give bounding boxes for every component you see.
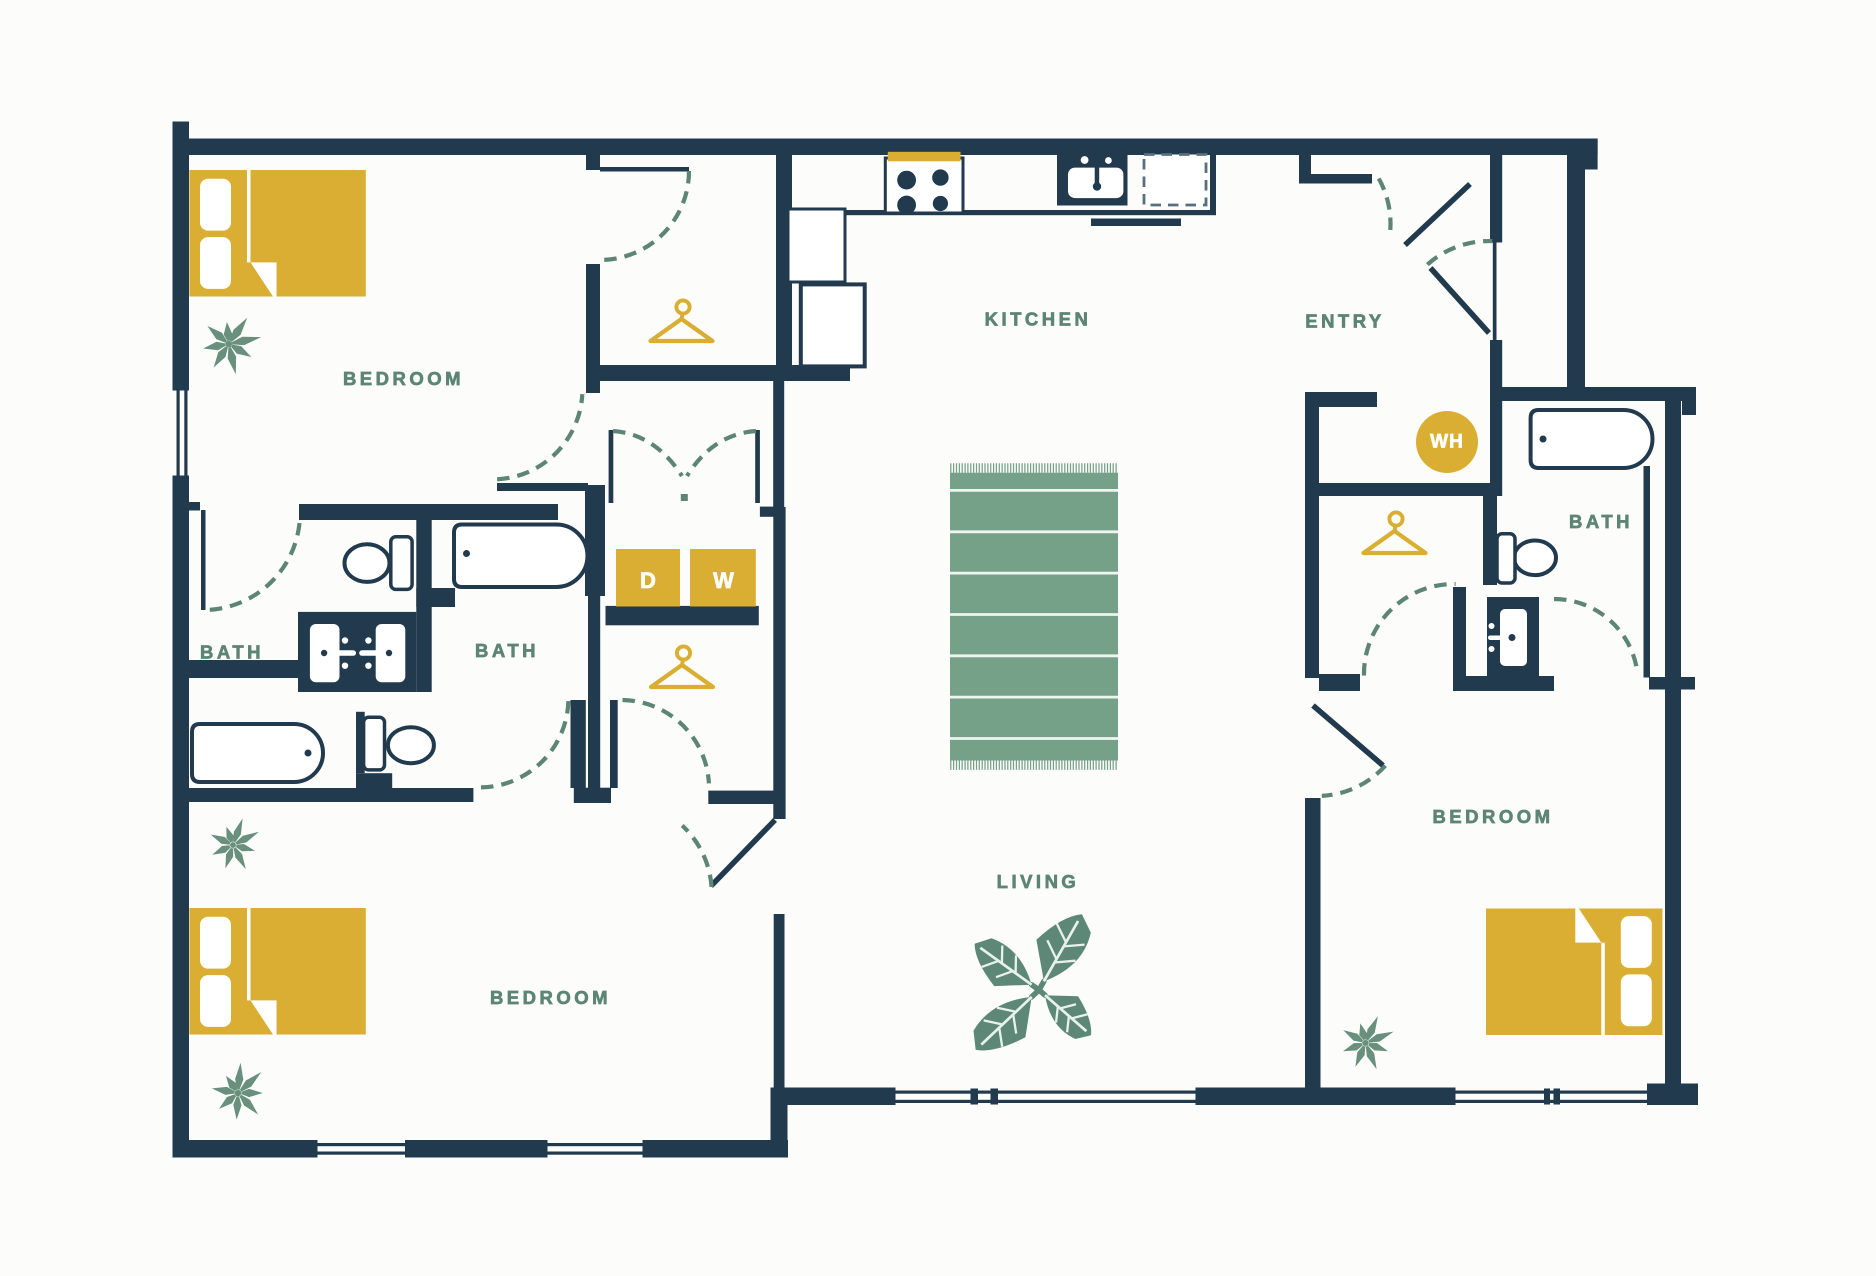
svg-text:WH: WH [1430, 432, 1464, 453]
svg-text:W: W [713, 568, 734, 593]
svg-text:BEDROOM: BEDROOM [490, 987, 611, 1008]
svg-text:D: D [640, 568, 656, 593]
svg-text:BEDROOM: BEDROOM [343, 368, 464, 389]
svg-text:BEDROOM: BEDROOM [1432, 806, 1553, 827]
svg-text:KITCHEN: KITCHEN [985, 309, 1092, 330]
svg-text:ENTRY: ENTRY [1305, 311, 1385, 332]
svg-text:BATH: BATH [200, 642, 264, 663]
svg-text:LIVING: LIVING [997, 871, 1080, 892]
svg-text:BATH: BATH [1569, 511, 1633, 532]
svg-text:BATH: BATH [475, 640, 539, 661]
